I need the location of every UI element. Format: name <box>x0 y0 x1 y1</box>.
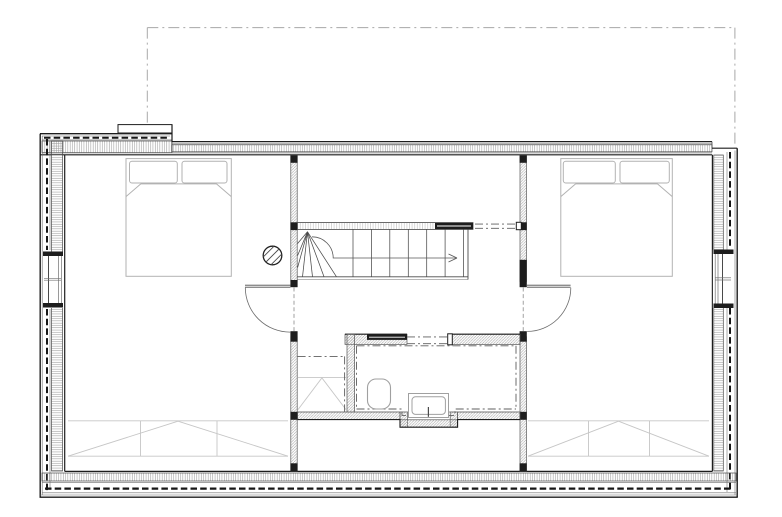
right-window-cap-top <box>714 250 734 255</box>
wall-left-upper <box>291 155 297 281</box>
wall-right-cap4 <box>520 331 527 342</box>
bath-niche-wall-bottom <box>400 420 458 427</box>
top-wall-parapet-block <box>118 125 172 133</box>
left-window-mask <box>43 252 64 309</box>
right-wall-insulation-b <box>714 307 724 471</box>
wall-left-cap2 <box>290 222 297 230</box>
bath-bottom-wall-a <box>298 412 400 420</box>
wall-left-cap3 <box>290 280 297 287</box>
right-wall-insulation-a <box>714 155 724 250</box>
bed-left-pillow-2 <box>182 161 227 183</box>
wall-left-cap6 <box>290 463 297 471</box>
wall-left-lower <box>291 337 297 472</box>
left-window-cap-top <box>43 252 63 257</box>
stair-door-jamb-box <box>516 222 521 229</box>
wall-left-cap4 <box>290 331 297 342</box>
bottom-wall-insulation <box>42 473 736 481</box>
bath-bottom-wall-b <box>458 412 520 420</box>
left-wall-insulation-b <box>52 307 63 471</box>
wall-right-cap5 <box>520 412 527 420</box>
floor-plan-page <box>0 0 782 517</box>
wall-right-cap6 <box>520 463 527 471</box>
wall-right-lower <box>520 337 526 472</box>
wall-right-cap3 <box>520 260 527 287</box>
right-window-mask <box>713 250 734 309</box>
eave-wall-insulation <box>172 145 712 152</box>
wall-left-cap5 <box>290 412 297 420</box>
left-wall-insulation-a <box>52 141 63 252</box>
floor-plan-svg <box>0 0 782 517</box>
bath-left-wall <box>347 334 355 412</box>
bath-door-jamb-box <box>448 334 453 345</box>
bed-right-pillow-2 <box>620 161 669 183</box>
bath-top-wall-b <box>452 334 520 344</box>
bed-right-pillow-1 <box>563 161 615 183</box>
wall-left-cap1 <box>290 155 297 163</box>
right-window-cap-bottom <box>714 304 734 309</box>
left-window-cap-bottom <box>43 303 63 308</box>
bed-left-pillow-1 <box>130 161 178 183</box>
wall-right-cap1 <box>520 155 527 163</box>
toilet <box>368 379 391 409</box>
